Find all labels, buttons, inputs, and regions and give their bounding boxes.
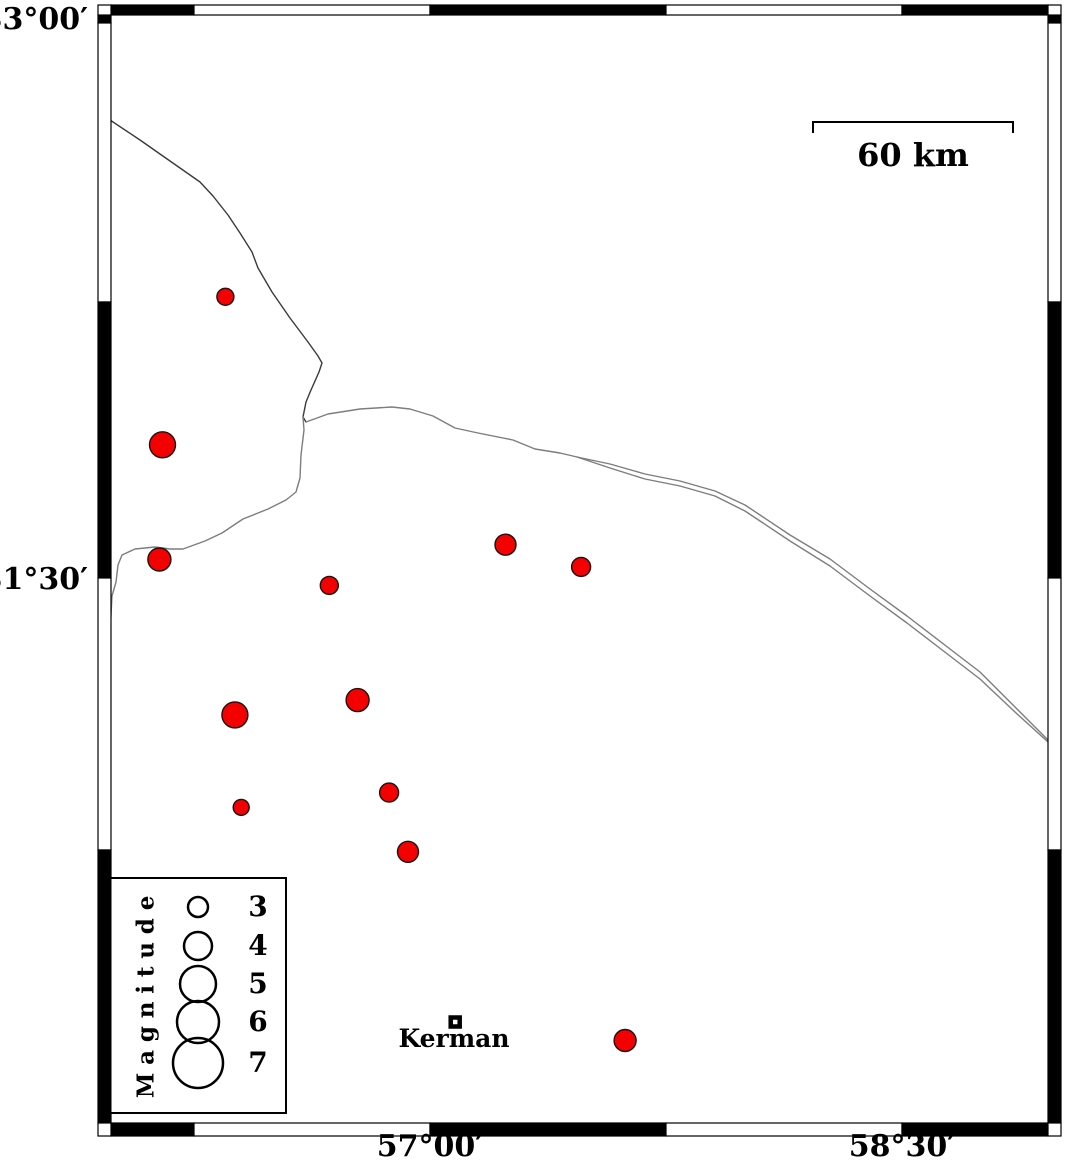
frame-segment	[1048, 850, 1061, 1123]
scale-bar	[813, 122, 1013, 133]
frame-segment	[1048, 1123, 1061, 1136]
earthquake-marker	[148, 548, 171, 571]
legend-magnitude-6-label: 6	[236, 1007, 280, 1037]
fault-line-northwest	[110, 120, 322, 422]
frame-segment	[666, 5, 902, 15]
frame-segment	[902, 5, 1048, 15]
fault-line-east-main	[306, 407, 1048, 742]
earthquake-marker	[222, 702, 248, 728]
frame-segment	[1048, 23, 1061, 302]
legend-magnitude-4-label: 4	[236, 931, 280, 961]
legend-magnitude-3-label: 3	[236, 892, 280, 922]
earthquake-marker	[380, 783, 399, 802]
frame-segment	[98, 5, 111, 15]
earthquake-marker	[614, 1030, 636, 1052]
frame-segment	[98, 1123, 111, 1136]
frame-segment	[98, 302, 111, 578]
axis-label-latitude-33-00: 33°00′	[0, 1, 88, 39]
frame-segment	[111, 5, 194, 15]
frame-segment	[1048, 5, 1061, 15]
frame-segment	[1048, 15, 1061, 23]
earthquake-marker	[398, 841, 419, 862]
frame-segment	[430, 5, 666, 15]
frame-segment	[98, 15, 111, 23]
earthquake-marker	[495, 534, 516, 555]
seismicity-map: 33°00′ 31°30′ 57°00′ 58°30′ 60 km Kerman…	[0, 0, 1066, 1163]
earthquake-marker	[572, 557, 591, 576]
legend-magnitude-7-label: 7	[236, 1048, 280, 1078]
frame-segment	[194, 5, 430, 15]
earthquake-marker	[233, 799, 249, 815]
axis-label-longitude-57-00: 57°00′	[330, 1128, 530, 1163]
axis-label-latitude-31-30: 31°30′	[0, 561, 88, 599]
fault-line-west-branch	[110, 417, 304, 632]
frame-segment	[1048, 578, 1061, 850]
earthquake-marker	[320, 576, 338, 594]
legend-title: Magnitude	[133, 888, 160, 1098]
city-label-kerman: Kerman	[374, 1026, 534, 1052]
fault-line-east-parallel	[577, 457, 1048, 740]
frame-segment	[98, 578, 111, 850]
frame-segment	[98, 23, 111, 302]
earthquake-marker	[217, 288, 234, 305]
legend-magnitude-5-label: 5	[236, 969, 280, 999]
earthquake-marker	[346, 689, 369, 712]
frame-segment	[1048, 302, 1061, 578]
frame-segment	[111, 1123, 194, 1136]
axis-label-longitude-58-30: 58°30′	[802, 1128, 1002, 1163]
frame-segment	[98, 850, 111, 1123]
earthquake-marker	[150, 432, 176, 458]
map-canvas	[0, 0, 1066, 1163]
scale-bar-label: 60 km	[833, 136, 993, 174]
